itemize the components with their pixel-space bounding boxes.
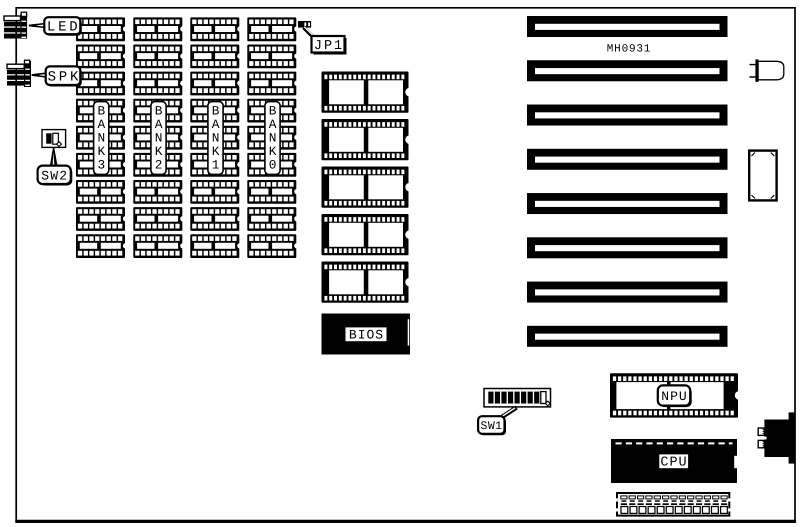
- svg-text:CPU: CPU: [660, 456, 687, 471]
- svg-text:SPK: SPK: [48, 70, 82, 86]
- svg-text:JP1: JP1: [314, 39, 344, 54]
- svg-text:0: 0: [269, 158, 277, 173]
- svg-text:MH0931: MH0931: [607, 44, 651, 56]
- svg-text:NPU: NPU: [661, 389, 687, 404]
- svg-text:3: 3: [97, 158, 105, 173]
- svg-text:1: 1: [212, 158, 220, 173]
- svg-text:2: 2: [155, 158, 163, 173]
- svg-text:SW2: SW2: [41, 169, 68, 184]
- svg-text:SW1: SW1: [481, 420, 503, 433]
- svg-text:LED: LED: [47, 20, 81, 36]
- svg-text:BIOS: BIOS: [349, 328, 384, 343]
